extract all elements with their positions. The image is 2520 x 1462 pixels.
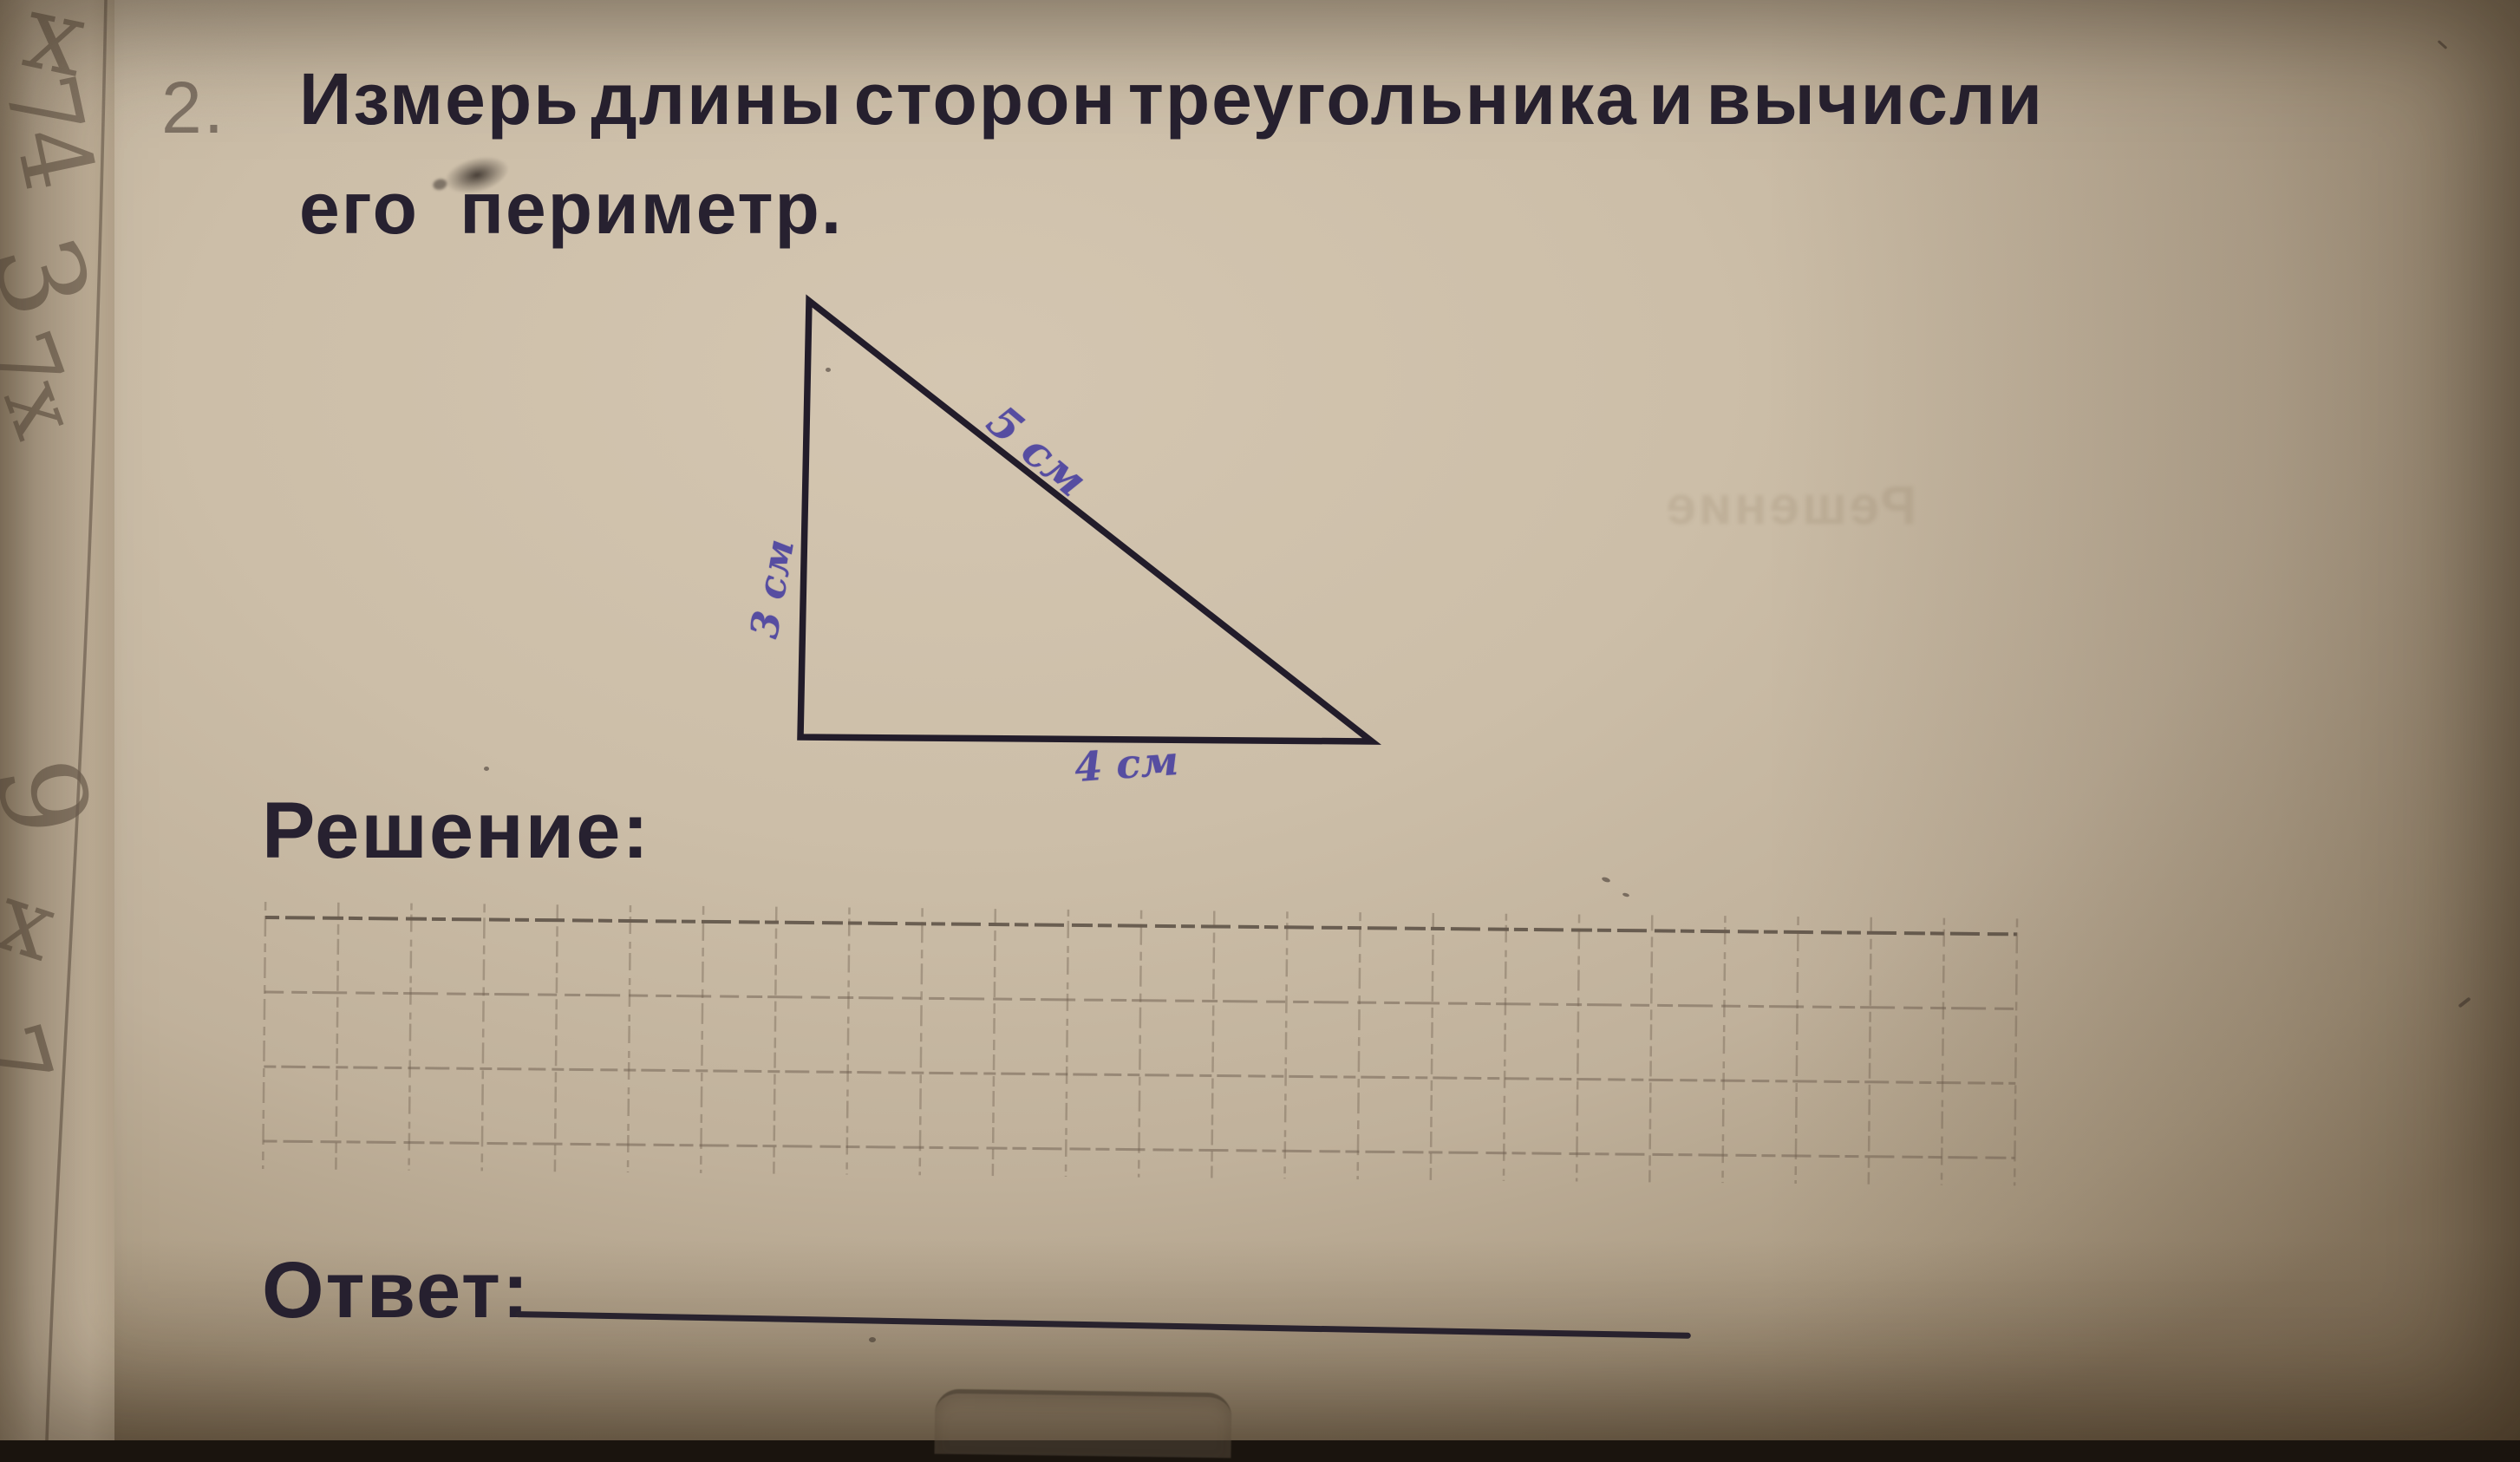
side-label-hypotenuse: 5 см <box>977 395 1097 507</box>
paper-speck <box>869 1337 876 1342</box>
task-number: 2. <box>161 66 225 150</box>
paper-speck <box>1601 876 1610 883</box>
side-label-base: 4 см <box>1073 737 1179 791</box>
title-word: вычисли <box>1706 57 2044 141</box>
answer-blank-line <box>515 1311 1691 1339</box>
page-edge-pencil-line <box>0 0 156 1440</box>
bleed-through-text: Решение <box>1630 475 1916 537</box>
paper-speck <box>826 368 831 372</box>
worksheet-photo: x 74 3 7x 9 x 7 2. Измерьдлинысторонтреу… <box>0 0 2520 1440</box>
title-word: длины <box>591 57 843 141</box>
task-title-line2: его периметр. <box>299 166 843 251</box>
task-title-line1: Измерьдлинысторонтреугольникаивычисли <box>299 57 2044 141</box>
paper-speck <box>2438 40 2448 49</box>
paper-speck <box>484 767 489 771</box>
title-word: Измерь <box>299 57 580 141</box>
title-word: и <box>1648 57 1695 141</box>
title-word: треугольника <box>1128 57 1638 141</box>
title-word: сторон <box>854 57 1117 141</box>
paper-speck <box>1622 892 1630 897</box>
triangle-outline <box>800 301 1372 741</box>
eraser-smudge <box>934 1389 1231 1459</box>
side-label-left-side: 3 см <box>742 536 803 642</box>
paper-speck <box>2458 996 2471 1008</box>
solution-label: Решение: <box>262 786 650 877</box>
answer-label: Ответ: <box>262 1245 531 1336</box>
